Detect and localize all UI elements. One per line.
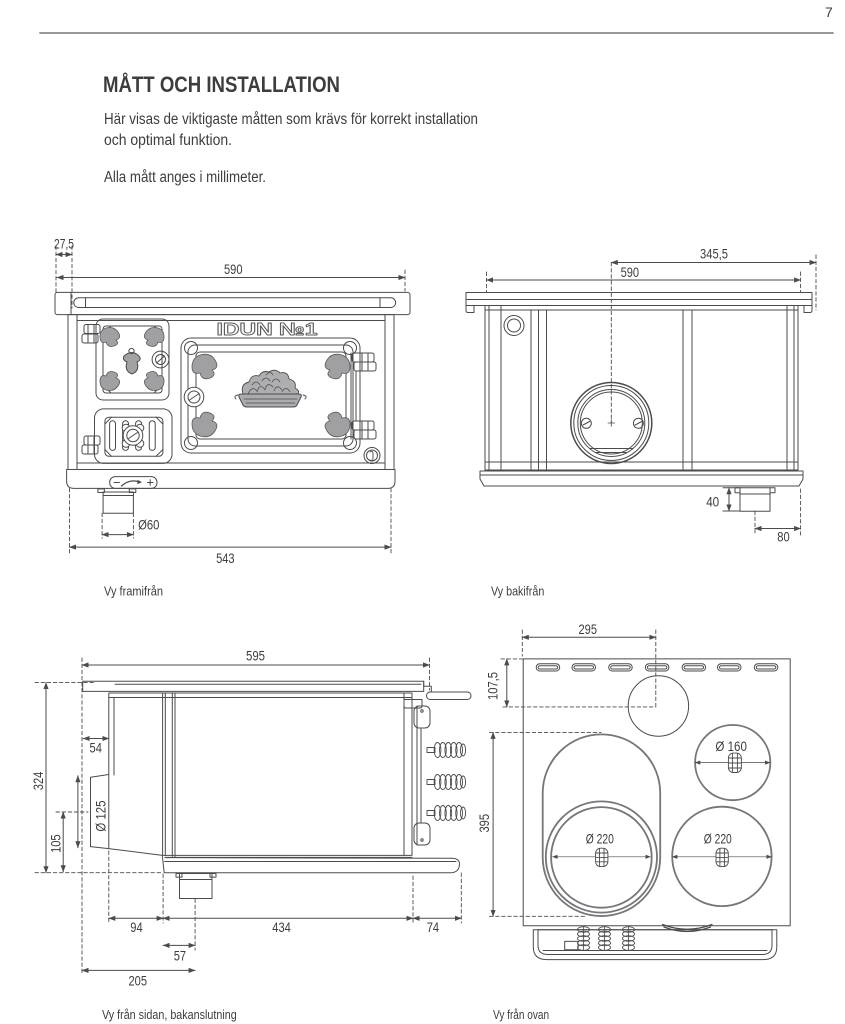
svg-text:7: 7 xyxy=(825,4,833,20)
svg-text:Ø 220: Ø 220 xyxy=(704,831,732,847)
svg-text:IDUN №1: IDUN №1 xyxy=(217,319,318,339)
svg-text:Vy framifrån: Vy framifrån xyxy=(104,585,163,599)
svg-text:Ø60: Ø60 xyxy=(138,517,159,533)
svg-text:Ø 220: Ø 220 xyxy=(586,831,614,847)
svg-text:74: 74 xyxy=(427,919,440,935)
svg-text:54: 54 xyxy=(90,740,103,756)
svg-text:Vy från sidan, bakanslutning: Vy från sidan, bakanslutning xyxy=(102,1008,237,1022)
svg-text:94: 94 xyxy=(130,919,143,935)
svg-text:434: 434 xyxy=(272,919,291,935)
svg-text:590: 590 xyxy=(224,261,243,277)
svg-text:Vy bakifrån: Vy bakifrån xyxy=(491,585,544,599)
svg-text:543: 543 xyxy=(216,550,235,566)
svg-text:MÅTT OCH INSTALLATION: MÅTT OCH INSTALLATION xyxy=(103,71,340,97)
svg-text:345,5: 345,5 xyxy=(700,246,728,262)
svg-text:80: 80 xyxy=(777,529,790,545)
svg-text:och optimal funktion.: och optimal funktion. xyxy=(104,132,232,149)
svg-text:105: 105 xyxy=(48,834,64,853)
svg-text:395: 395 xyxy=(476,814,492,833)
svg-text:Ø 160: Ø 160 xyxy=(715,738,747,754)
svg-text:40: 40 xyxy=(706,494,719,510)
svg-text:Vy från ovan: Vy från ovan xyxy=(493,1008,549,1022)
svg-text:107,5: 107,5 xyxy=(485,672,501,700)
svg-text:27,5: 27,5 xyxy=(54,236,74,252)
svg-text:57: 57 xyxy=(174,948,187,964)
svg-text:205: 205 xyxy=(129,973,148,989)
svg-text:595: 595 xyxy=(246,648,265,664)
svg-text:324: 324 xyxy=(30,772,46,791)
svg-text:Här visas de viktigaste måtten: Här visas de viktigaste måtten som krävs… xyxy=(104,111,478,128)
svg-text:590: 590 xyxy=(621,264,640,280)
svg-text:Ø 125: Ø 125 xyxy=(93,800,109,831)
svg-text:295: 295 xyxy=(579,621,598,637)
svg-text:Alla mått anges i millimeter.: Alla mått anges i millimeter. xyxy=(104,169,266,186)
